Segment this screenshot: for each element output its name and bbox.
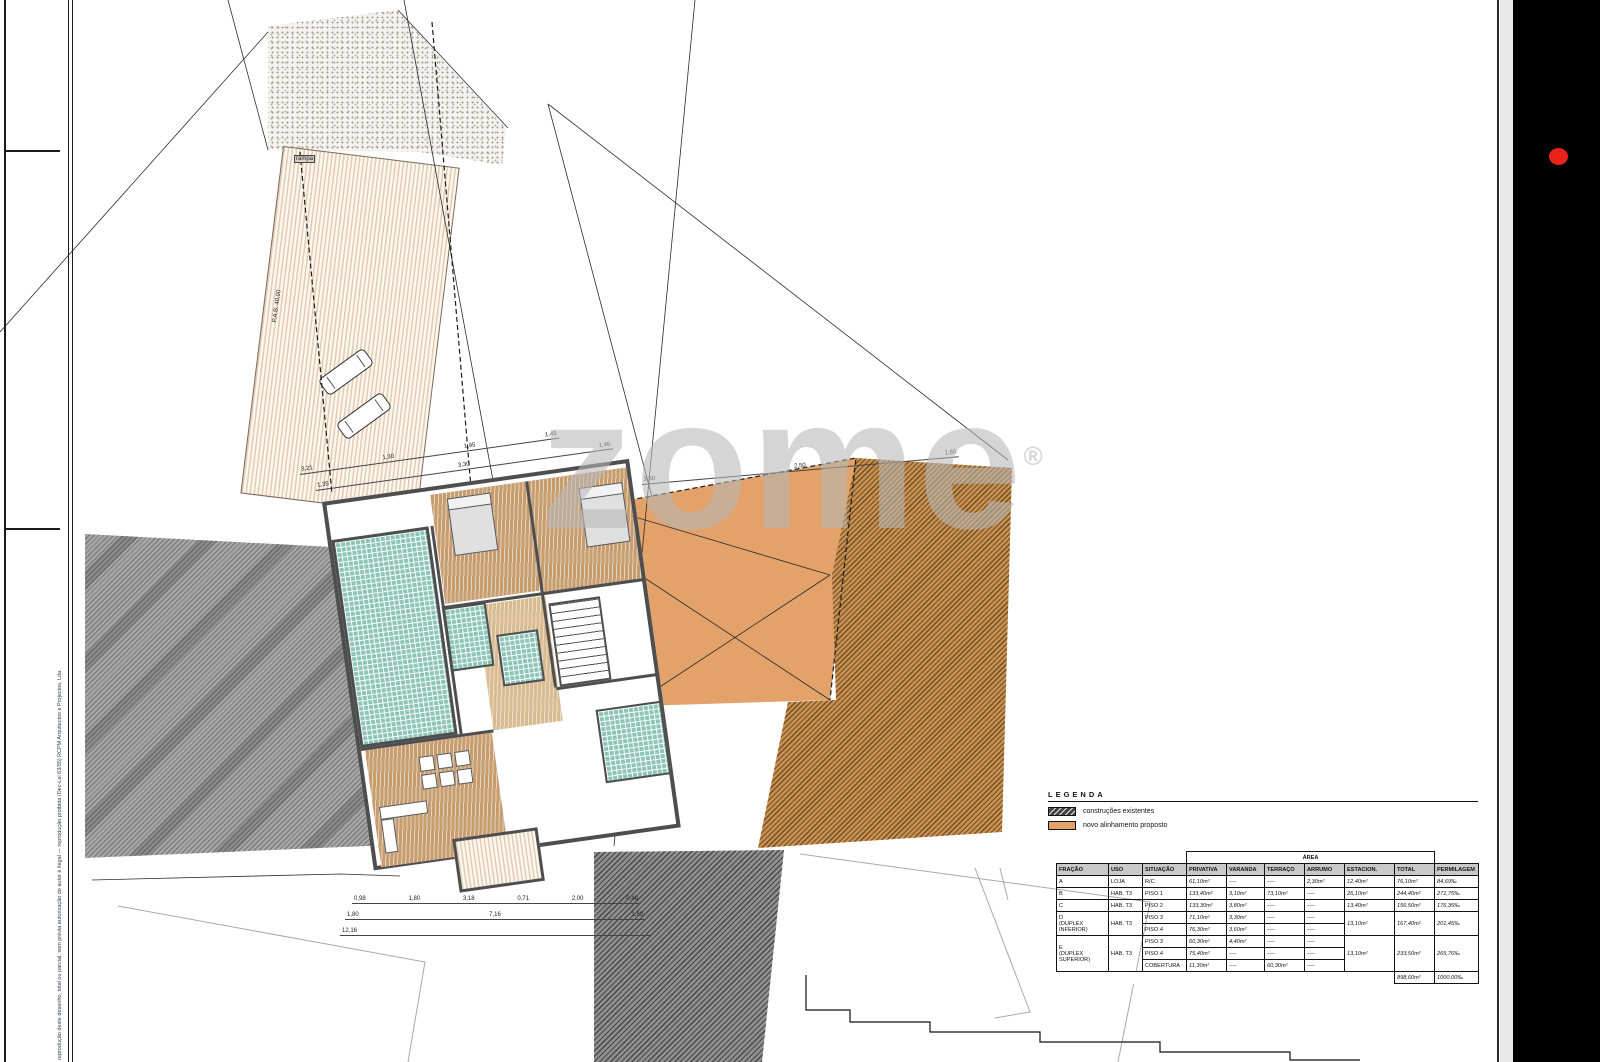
table-cell: ---- xyxy=(1305,912,1345,924)
table-cell: 11,30m² xyxy=(1187,960,1227,972)
dimension-value: 1,65 xyxy=(942,449,958,456)
dimension-value: 1,80 xyxy=(406,896,422,902)
table-cell: R/C xyxy=(1143,876,1187,888)
column-header: TERRAÇO xyxy=(1265,864,1305,876)
table-cell: ---- xyxy=(1305,936,1345,948)
footer-spacer xyxy=(1057,972,1395,984)
dimension-value: 1,35 xyxy=(315,481,331,489)
permilagem-sum: 1000,00‰ xyxy=(1435,972,1479,984)
table-cell: ---- xyxy=(1265,912,1305,924)
table-cell: 84,69‰ xyxy=(1435,876,1479,888)
table-cell: D (DUPLEX INFERIOR) xyxy=(1057,912,1109,936)
table-row: E (DUPLEX SUPERIOR)HAB. T3PISO 360,30m²4… xyxy=(1057,936,1479,948)
legend: LEGENDA construções existentesnovo alinh… xyxy=(1048,790,1478,830)
dimension-value: 0,98 xyxy=(352,896,368,902)
legend-title: LEGENDA xyxy=(1048,790,1478,802)
table-row: ALOJAR/C61,10m²--------2,30m²12,40m²76,1… xyxy=(1057,876,1479,888)
table-cell: 201,45‰ xyxy=(1435,912,1479,936)
table-cell: PISO 3 xyxy=(1143,912,1187,924)
table-cell: ---- xyxy=(1305,924,1345,936)
table-cell: ---- xyxy=(1305,948,1345,960)
dimension-value: 3,50 xyxy=(641,476,657,483)
dimension-value: 1,80 xyxy=(345,912,361,918)
table-cell: 60,30m² xyxy=(1187,936,1227,948)
area-span-header xyxy=(1435,852,1479,864)
sw-orange-swatch-icon xyxy=(1048,821,1076,830)
column-header: PRIVATIVA xyxy=(1187,864,1227,876)
table-cell: PISO 4 xyxy=(1143,948,1187,960)
table-cell: HAB. T3 xyxy=(1109,888,1143,900)
side-note-firm: RCPM Arquitectos e Projectos, Lda. xyxy=(57,669,63,757)
dimension-value: 3,30 xyxy=(456,461,472,469)
table-cell: PISO 2 xyxy=(1143,900,1187,912)
table-cell: 167,40m² xyxy=(1395,912,1435,936)
table-cell: 61,10m² xyxy=(1187,876,1227,888)
table-cell: 13,10m² xyxy=(1345,912,1395,936)
table-cell: C xyxy=(1057,900,1109,912)
area-span-header xyxy=(1057,852,1187,864)
stairwell xyxy=(548,596,611,686)
dimension-value: 2,50 xyxy=(792,462,808,469)
table-cell: 265,76‰ xyxy=(1435,936,1479,972)
table-cell: HAB. T3 xyxy=(1109,912,1143,936)
table-row: BHAB. T3PISO 1133,40m²3,10m²73,10m²----2… xyxy=(1057,888,1479,900)
table-cell: 2,30m² xyxy=(1305,876,1345,888)
drawing-viewer: RCPM Arquitectos e Projectos, Lda. repro… xyxy=(0,0,1600,1062)
ramp-label: rampa xyxy=(294,155,315,163)
dining-chair xyxy=(457,768,474,785)
dimension-value: 1,95 xyxy=(461,442,477,450)
legend-item-label: novo alinhamento proposto xyxy=(1083,822,1167,829)
area-table: ÁREAFRAÇÃOUSOSITUAÇÃOPRIVATIVAVARANDATER… xyxy=(1056,851,1479,984)
table-cell: 3,80m² xyxy=(1227,900,1265,912)
dining-chair xyxy=(421,773,438,790)
dining-chair xyxy=(418,755,435,772)
table-cell: ---- xyxy=(1265,876,1305,888)
table-row: D (DUPLEX INFERIOR)HAB. T3PISO 371,10m²3… xyxy=(1057,912,1479,924)
table-cell: 13,40m² xyxy=(1345,900,1395,912)
frame-right-border xyxy=(1497,0,1499,1062)
dimension-chain: 12,16 xyxy=(340,929,650,936)
table-cell: 133,40m² xyxy=(1187,888,1227,900)
area-table-wrapper: ÁREAFRAÇÃOUSOSITUAÇÃOPRIVATIVAVARANDATER… xyxy=(1056,851,1479,984)
table-cell: LOJA xyxy=(1109,876,1143,888)
table-cell: ---- xyxy=(1227,960,1265,972)
side-note-copyright: reprodução deste desenho, total ou parci… xyxy=(57,758,63,1060)
table-cell: PISO 1 xyxy=(1143,888,1187,900)
table-cell: ---- xyxy=(1265,900,1305,912)
bathroom-3 xyxy=(596,701,672,783)
dining-chair xyxy=(439,770,456,787)
table-cell: 76,30m² xyxy=(1187,924,1227,936)
column-header: VARANDA xyxy=(1227,864,1265,876)
table-cell: 233,50m² xyxy=(1395,936,1435,972)
dimension-value: 3,21 xyxy=(299,465,315,473)
table-cell: A xyxy=(1057,876,1109,888)
table-cell: 12,40m² xyxy=(1345,876,1395,888)
column-header: ESTACION. xyxy=(1345,864,1395,876)
table-cell: ---- xyxy=(1265,948,1305,960)
dining-chair xyxy=(454,750,471,767)
table-cell: HAB. T3 xyxy=(1109,900,1143,912)
table-cell: 176,35‰ xyxy=(1435,900,1479,912)
table-cell: ---- xyxy=(1305,960,1345,972)
table-cell: 60,30m² xyxy=(1265,960,1305,972)
dimension-value: 1,46 xyxy=(596,441,612,449)
column-header: USO xyxy=(1109,864,1143,876)
dimension-value: 1,30 xyxy=(380,453,396,461)
table-cell: 71,10m² xyxy=(1187,912,1227,924)
bathroom-2 xyxy=(496,629,545,686)
legend-items: construções existentesnovo alinhamento p… xyxy=(1048,807,1478,830)
table-row: CHAB. T3PISO 2133,30m²3,80m²--------13,4… xyxy=(1057,900,1479,912)
legend-item-label: construções existentes xyxy=(1083,808,1154,815)
dimension-value: 12,16 xyxy=(340,928,359,934)
table-cell: 76,10m² xyxy=(1395,876,1435,888)
column-header: TOTAL xyxy=(1395,864,1435,876)
sw-hatch-swatch-icon xyxy=(1048,807,1076,816)
table-cell: 26,10m² xyxy=(1345,888,1395,900)
viewer-gutter xyxy=(1500,0,1514,1062)
legend-item: novo alinhamento proposto xyxy=(1048,821,1478,830)
record-indicator-icon xyxy=(1549,148,1568,165)
table-cell: 271,75‰ xyxy=(1435,888,1479,900)
table-cell: HAB. T3 xyxy=(1109,936,1143,972)
table-cell: E (DUPLEX SUPERIOR) xyxy=(1057,936,1109,972)
table-cell: ---- xyxy=(1227,876,1265,888)
table-cell: ---- xyxy=(1305,888,1345,900)
column-header: SITUAÇÃO xyxy=(1143,864,1187,876)
table-cell: ---- xyxy=(1227,948,1265,960)
dimension-value: 7,16 xyxy=(487,912,503,918)
table-cell: PISO 3 xyxy=(1143,936,1187,948)
table-cell: 75,40m² xyxy=(1187,948,1227,960)
table-cell: 3,60m² xyxy=(1227,924,1265,936)
table-cell: ---- xyxy=(1265,936,1305,948)
dimension-value: 1,45 xyxy=(543,431,559,439)
table-cell: 4,40m² xyxy=(1227,936,1265,948)
total-area-sum: 898,60m² xyxy=(1395,972,1435,984)
dimension-value: 0,71 xyxy=(515,896,531,902)
table-cell: PISO 4 xyxy=(1143,924,1187,936)
table-cell: 3,10m² xyxy=(1227,888,1265,900)
table-cell: 133,30m² xyxy=(1187,900,1227,912)
dimension-value: 1,80 xyxy=(629,912,645,918)
column-header: ARRUMO xyxy=(1305,864,1345,876)
dimension-value: 3,18 xyxy=(461,896,477,902)
table-cell: B xyxy=(1057,888,1109,900)
area-span-header: ÁREA xyxy=(1187,852,1435,864)
dimension-chain: 1,807,161,80 xyxy=(345,913,645,920)
dimension-value: 0,48 xyxy=(624,896,640,902)
table-cell: 13,10m² xyxy=(1345,936,1395,972)
dimension-chain: 0,981,803,180,712,000,48 xyxy=(352,897,640,904)
dimension-value: 2,00 xyxy=(570,896,586,902)
table-cell: 244,40m² xyxy=(1395,888,1435,900)
new-building-floor-plan xyxy=(322,459,681,871)
legend-item: construções existentes xyxy=(1048,807,1478,816)
table-cell: COBERTURA xyxy=(1143,960,1187,972)
column-header: FRAÇÃO xyxy=(1057,864,1109,876)
table-cell: 73,10m² xyxy=(1265,888,1305,900)
dining-chair xyxy=(436,752,453,769)
table-cell: ---- xyxy=(1305,900,1345,912)
table-cell: 3,30m² xyxy=(1227,912,1265,924)
table-cell: 156,50m² xyxy=(1395,900,1435,912)
table-cell: ---- xyxy=(1265,924,1305,936)
column-header: PERMILAGEM xyxy=(1435,864,1479,876)
